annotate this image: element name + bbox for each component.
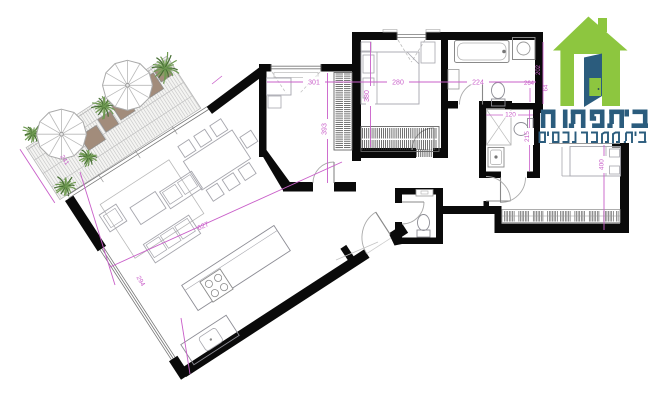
svg-text:224: 224	[472, 80, 484, 87]
svg-text:202: 202	[536, 64, 542, 75]
svg-text:64: 64	[544, 84, 550, 91]
svg-text:215: 215	[524, 131, 531, 142]
svg-text:301: 301	[308, 80, 320, 87]
svg-text:264: 264	[524, 81, 535, 87]
svg-text:380: 380	[364, 90, 371, 102]
svg-text:393: 393	[322, 123, 329, 135]
svg-text:400: 400	[599, 159, 606, 170]
svg-text:120: 120	[505, 112, 516, 119]
svg-text:280: 280	[392, 80, 404, 87]
